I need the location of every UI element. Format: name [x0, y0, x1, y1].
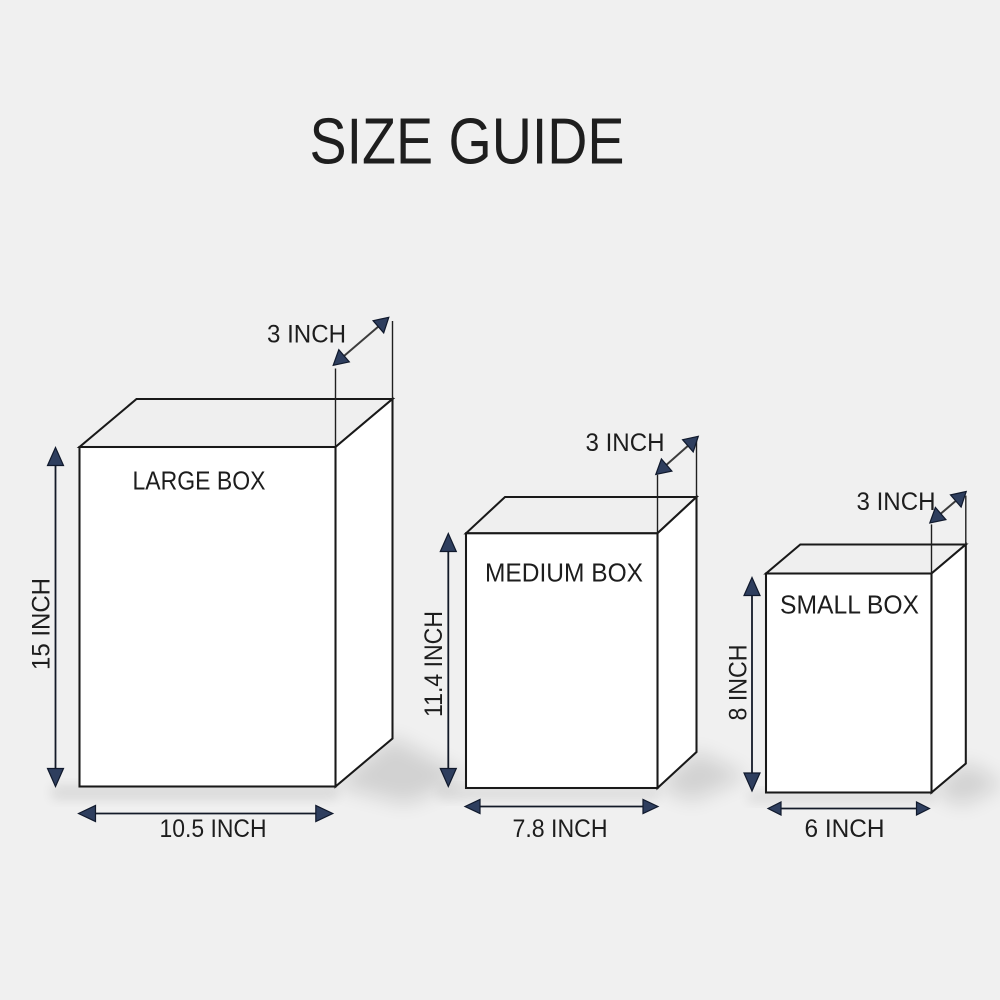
svg-text:LARGE BOX: LARGE BOX [133, 466, 266, 496]
svg-text:15 INCH: 15 INCH [28, 578, 56, 670]
svg-text:10.5 INCH: 10.5 INCH [160, 815, 267, 843]
svg-text:7.8 INCH: 7.8 INCH [513, 815, 608, 843]
svg-text:SIZE GUIDE: SIZE GUIDE [310, 105, 625, 178]
svg-text:SMALL BOX: SMALL BOX [780, 590, 919, 620]
svg-text:6 INCH: 6 INCH [805, 815, 885, 843]
svg-text:3 INCH: 3 INCH [857, 488, 936, 516]
svg-text:MEDIUM BOX: MEDIUM BOX [485, 558, 643, 588]
svg-text:3 INCH: 3 INCH [267, 321, 346, 349]
svg-text:11.4 INCH: 11.4 INCH [420, 611, 448, 717]
svg-text:8 INCH: 8 INCH [725, 645, 753, 721]
svg-text:3 INCH: 3 INCH [586, 429, 665, 457]
